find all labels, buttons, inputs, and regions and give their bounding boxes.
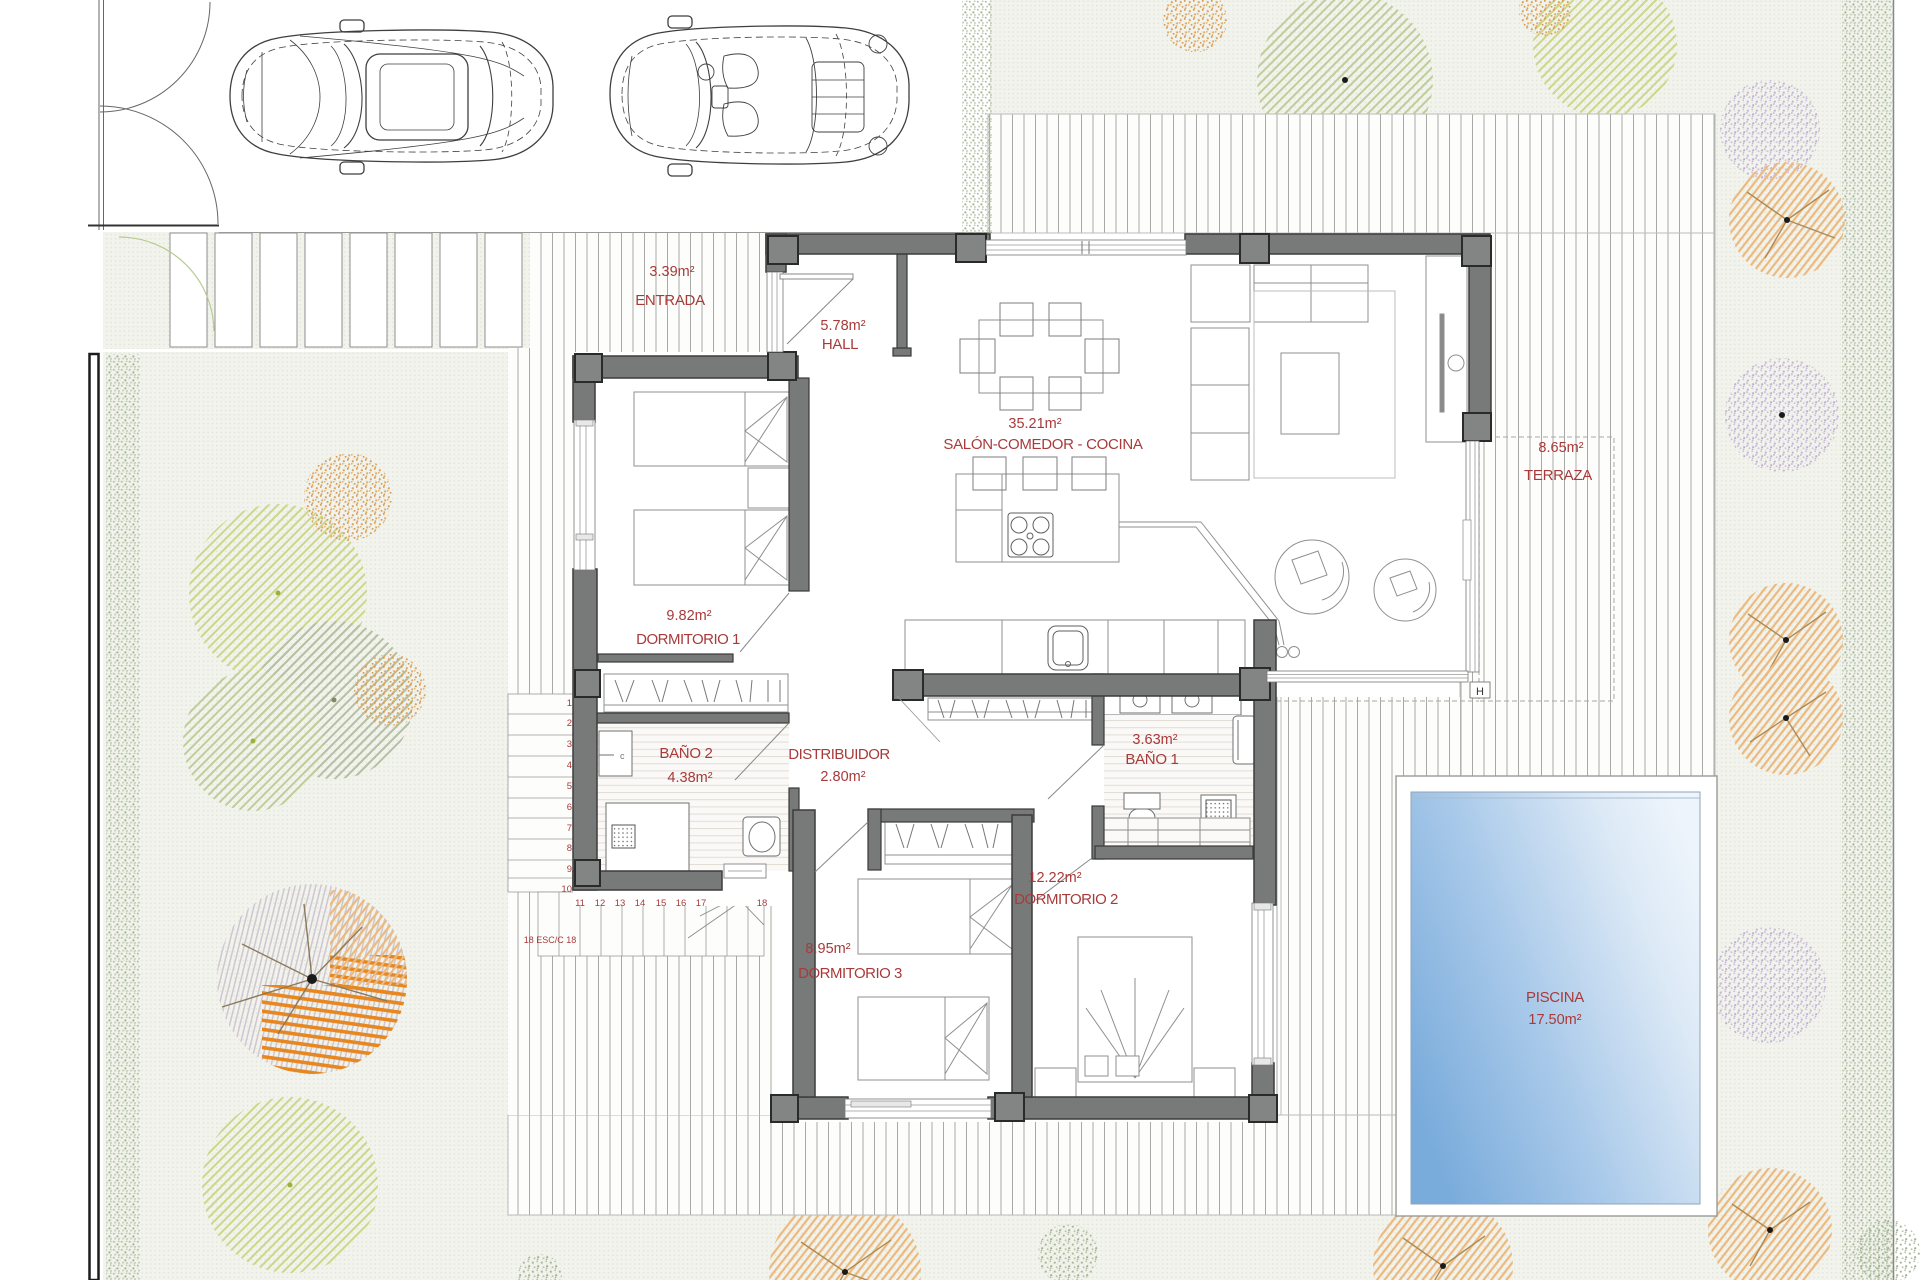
svg-text:DORMITORIO 3: DORMITORIO 3: [798, 965, 902, 982]
svg-text:5.78m²: 5.78m²: [820, 318, 865, 334]
svg-text:17.50m²: 17.50m²: [1528, 1012, 1581, 1028]
svg-text:ENTRADA: ENTRADA: [635, 292, 705, 309]
svg-text:6: 6: [567, 802, 572, 813]
svg-text:BAÑO 2: BAÑO 2: [659, 745, 712, 762]
svg-text:3: 3: [567, 739, 572, 750]
svg-text:13: 13: [615, 898, 626, 909]
svg-text:7: 7: [567, 823, 572, 834]
svg-text:9: 9: [567, 864, 572, 875]
svg-text:3.39m²: 3.39m²: [649, 264, 694, 280]
svg-text:17: 17: [696, 898, 707, 909]
svg-text:5: 5: [567, 781, 572, 792]
svg-text:2: 2: [567, 718, 572, 729]
svg-text:TERRAZA: TERRAZA: [1524, 467, 1592, 484]
svg-text:16: 16: [676, 898, 687, 909]
svg-text:12: 12: [595, 898, 606, 909]
svg-text:18: 18: [757, 898, 768, 909]
svg-text:8: 8: [567, 843, 572, 854]
svg-text:11: 11: [575, 898, 585, 909]
svg-text:c: c: [620, 751, 625, 761]
svg-text:HALL: HALL: [822, 336, 858, 353]
svg-text:SALÓN-COMEDOR - COCINA: SALÓN-COMEDOR - COCINA: [943, 436, 1143, 453]
svg-text:DORMITORIO 1: DORMITORIO 1: [636, 631, 740, 648]
svg-text:18 ESC/C 18: 18 ESC/C 18: [524, 935, 577, 945]
svg-text:35.21m²: 35.21m²: [1008, 416, 1061, 432]
svg-text:8.65m²: 8.65m²: [1538, 440, 1583, 456]
svg-text:4.38m²: 4.38m²: [667, 770, 712, 786]
svg-text:8.95m²: 8.95m²: [805, 941, 850, 957]
svg-text:DORMITORIO 2: DORMITORIO 2: [1014, 891, 1118, 908]
svg-text:10: 10: [561, 884, 572, 895]
svg-text:14: 14: [635, 898, 646, 909]
svg-text:H: H: [1476, 686, 1484, 698]
svg-text:1: 1: [567, 698, 572, 709]
svg-text:DISTRIBUIDOR: DISTRIBUIDOR: [788, 746, 890, 763]
svg-text:2.80m²: 2.80m²: [820, 769, 865, 785]
svg-text:4: 4: [567, 760, 572, 771]
svg-text:3.63m²: 3.63m²: [1132, 732, 1177, 748]
svg-text:12.22m²: 12.22m²: [1028, 870, 1081, 886]
svg-text:BAÑO 1: BAÑO 1: [1125, 751, 1178, 768]
svg-text:PISCINA: PISCINA: [1526, 989, 1584, 1006]
svg-text:9.82m²: 9.82m²: [666, 608, 711, 624]
svg-text:15: 15: [656, 898, 667, 909]
